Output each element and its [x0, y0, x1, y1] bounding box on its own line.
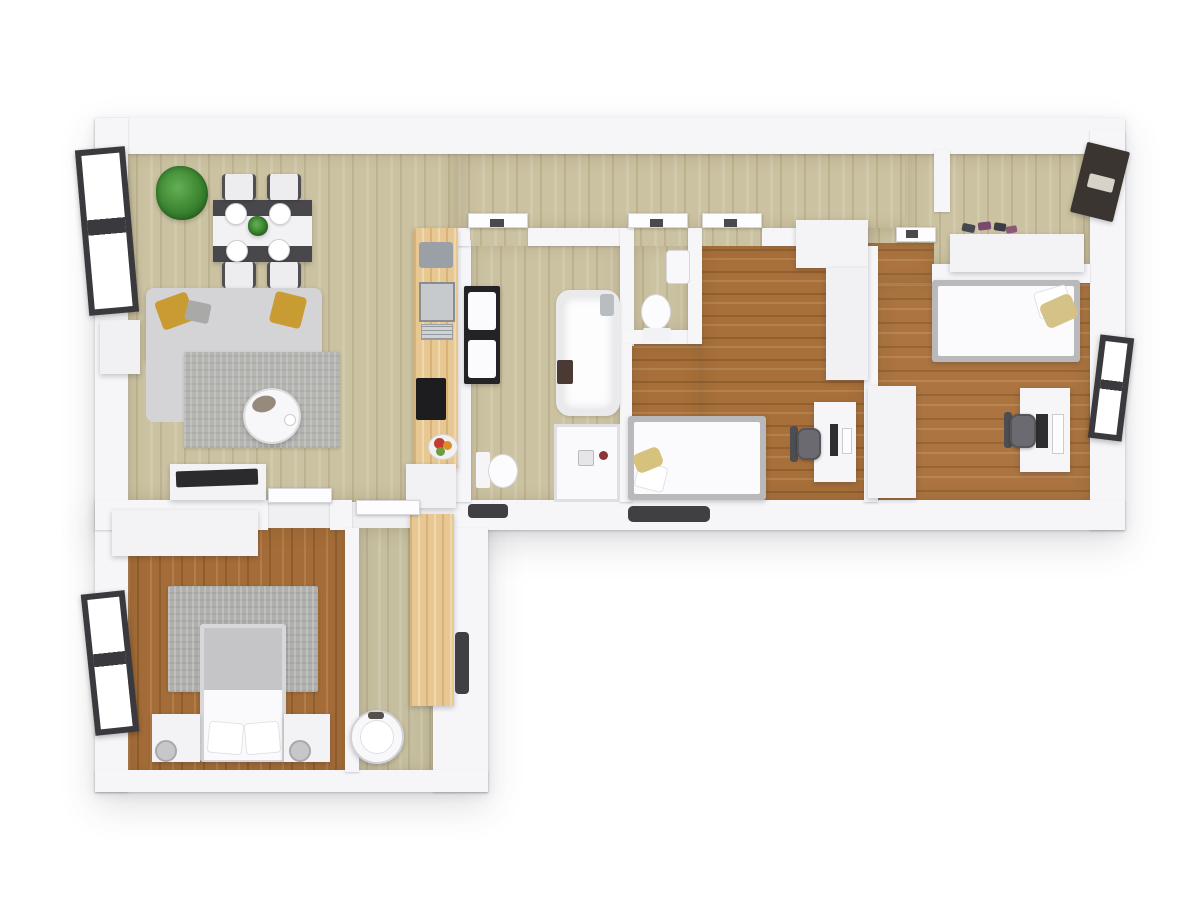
fruit-green [436, 447, 445, 456]
bedroom-2-cabinet [868, 386, 916, 498]
wall-exterior-top [95, 118, 1125, 154]
bedroom-1-office-chair [797, 428, 821, 460]
bedroom-1-monitor [830, 424, 838, 456]
shower-drain [578, 450, 594, 466]
wall-bathblock-top-b [528, 228, 630, 246]
table-centerpiece-plant [248, 216, 268, 236]
potted-plant [156, 166, 208, 220]
master-bedroom-door-leaf [268, 488, 332, 503]
bedroom-1-door-hinge [724, 219, 737, 227]
toilet-bowl-wc [641, 294, 671, 330]
kitchen-sink-drainer [421, 324, 453, 340]
threshold-wc-door [630, 228, 688, 246]
bathtub-faucet [600, 294, 614, 316]
shower-knob [599, 451, 608, 460]
threshold-bedroom-1-door [702, 228, 762, 246]
bedroom-2-door-hinge [906, 230, 918, 238]
radiator-bedroom-1 [628, 506, 710, 522]
master-bed-pillow [244, 721, 282, 756]
place-setting-plate [268, 239, 290, 261]
kitchen-sink [419, 282, 455, 322]
entrance-shoe-bench [950, 234, 1084, 272]
place-setting-plate [225, 203, 247, 225]
laundry-basket-inner [360, 720, 394, 754]
radiator-bathroom [468, 504, 508, 518]
bedside-lamp [289, 740, 311, 762]
apartment-floorplan-render [0, 0, 1200, 899]
wall-bottom-main-c [420, 500, 1125, 530]
wc-wall-sink [666, 250, 690, 284]
bedroom-1-wardrobe-tall [796, 220, 868, 268]
floorplan-canvas [0, 0, 1200, 899]
wall-bottom-main-b [330, 500, 352, 530]
entrance-shoe [994, 222, 1007, 232]
toilet-bowl-bathroom [488, 454, 518, 488]
laundry-basket-handle [368, 712, 384, 719]
vanity-basin [468, 340, 496, 378]
dining-chair [267, 262, 301, 288]
toilet-tank-wc [643, 328, 671, 341]
radiator-utility [455, 632, 469, 694]
master-bed-pillow [207, 721, 245, 756]
utility-door-leaf [356, 500, 420, 515]
cooktop [416, 378, 446, 420]
bedroom-2-keyboard [1052, 414, 1064, 454]
dining-chair [222, 262, 256, 288]
vanity-basin [468, 292, 496, 330]
bedroom-1-keyboard [842, 428, 852, 454]
bedroom-2-monitor [1036, 414, 1048, 448]
wall-ledge [100, 320, 140, 374]
wall-wing-bottom [95, 770, 488, 792]
bedside-lamp [155, 740, 177, 762]
coffee-table-ball [284, 414, 296, 426]
utility-wood-cabinet [410, 514, 454, 706]
dining-chair [222, 174, 256, 200]
bedroom-1-wardrobe [826, 268, 868, 380]
wall-bathroom-wc [620, 228, 634, 346]
threshold-bathroom-door [470, 228, 528, 246]
tv-screen [176, 469, 259, 488]
bathroom-door-hinge [490, 219, 504, 227]
coffee-machine [419, 242, 453, 268]
master-bed-duvet [204, 628, 282, 690]
bathtub-tray [557, 360, 573, 384]
master-wardrobe [112, 510, 258, 556]
place-setting-plate [226, 240, 248, 262]
entrance-shoe [978, 221, 992, 230]
bedroom-2-office-chair [1010, 414, 1036, 448]
place-setting-plate [269, 203, 291, 225]
wc-door-hinge [650, 219, 663, 227]
wall-wc-bedroom-1 [688, 228, 702, 344]
wall-hall-entrance-stub [934, 150, 950, 212]
dining-chair [267, 174, 301, 200]
